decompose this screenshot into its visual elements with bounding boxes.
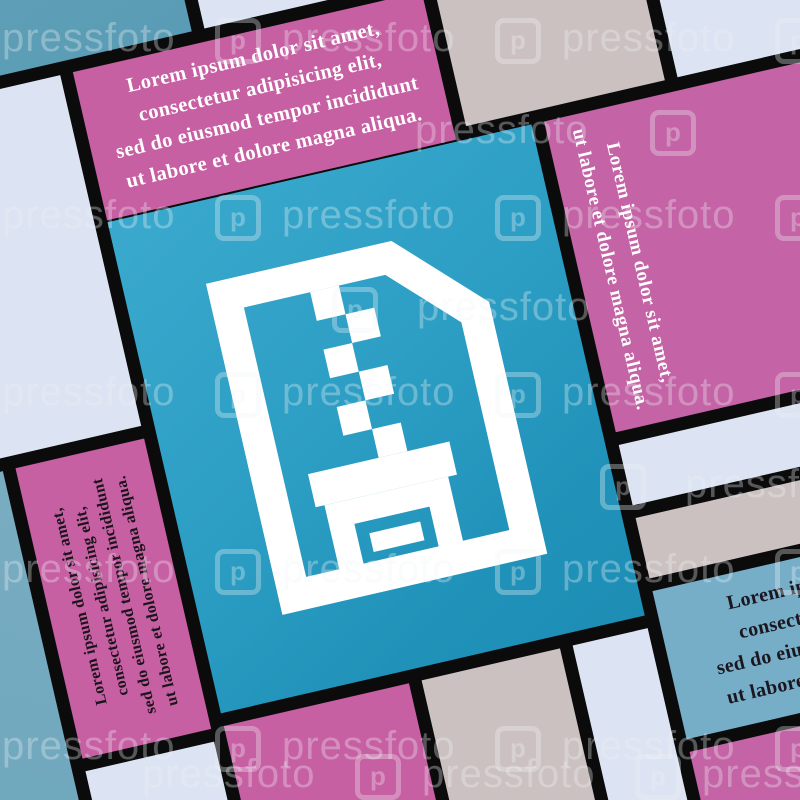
zip-file-icon — [206, 223, 548, 615]
stock-image-canvas: Lorem ipsum dolor sit amet, consectetur … — [0, 0, 800, 800]
zipper-teeth — [310, 279, 407, 465]
mondrian-tile-board: Lorem ipsum dolor sit amet, consectetur … — [0, 0, 800, 800]
document-outline — [206, 223, 548, 615]
zipper-slider-dash — [369, 522, 424, 553]
